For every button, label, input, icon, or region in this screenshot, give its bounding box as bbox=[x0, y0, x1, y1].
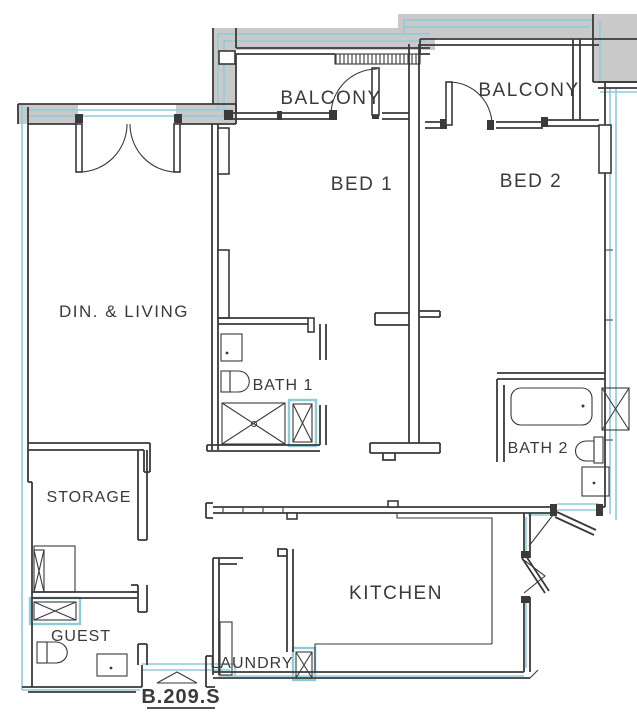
laundry-duct-shaft bbox=[296, 652, 312, 678]
room-label-bath-1: BATH 1 bbox=[253, 377, 314, 394]
column bbox=[218, 250, 229, 318]
guest-sink bbox=[97, 654, 127, 676]
column bbox=[599, 125, 611, 173]
room-label-bath-2: BATH 2 bbox=[508, 440, 569, 457]
unit-label: B.209.S bbox=[141, 686, 220, 708]
bath1-shower bbox=[222, 403, 285, 444]
floor-plan-page: BALCONY BALCONY BED 1 BED 2 DIN. & LIVIN… bbox=[0, 0, 637, 717]
bath1-sink bbox=[221, 334, 242, 361]
bath1-toilet bbox=[221, 371, 249, 392]
room-label-dining-living: DIN. & LIVING bbox=[59, 302, 189, 321]
room-label-storage: STORAGE bbox=[47, 489, 132, 506]
kitchen-door bbox=[522, 556, 549, 593]
guest-duct-shaft bbox=[34, 602, 76, 620]
bath2-bathtub bbox=[511, 388, 592, 425]
room-label-guest: GUEST bbox=[51, 628, 111, 645]
bath1-duct-shaft bbox=[293, 404, 312, 442]
entry-double-door bbox=[76, 124, 180, 172]
storage-closet bbox=[34, 546, 75, 592]
room-label-kitchen: KITCHEN bbox=[349, 583, 443, 604]
room-label-balcony-2: BALCONY bbox=[478, 80, 579, 101]
room-labels: BALCONY BALCONY BED 1 BED 2 DIN. & LIVIN… bbox=[47, 80, 580, 708]
floor-plan-drawing: BALCONY BALCONY BED 1 BED 2 DIN. & LIVIN… bbox=[0, 0, 637, 717]
bath2-toilet bbox=[576, 437, 604, 463]
room-label-bed-1: BED 1 bbox=[331, 174, 393, 195]
room-label-balcony-1: BALCONY bbox=[280, 88, 381, 109]
balcony1-vent-box bbox=[219, 51, 235, 64]
room-label-bed-2: BED 2 bbox=[500, 171, 562, 192]
room-label-laundry: LAUNDRY bbox=[210, 655, 293, 672]
column bbox=[218, 128, 229, 174]
entrance-door bbox=[529, 512, 596, 546]
guest-toilet bbox=[37, 642, 67, 663]
